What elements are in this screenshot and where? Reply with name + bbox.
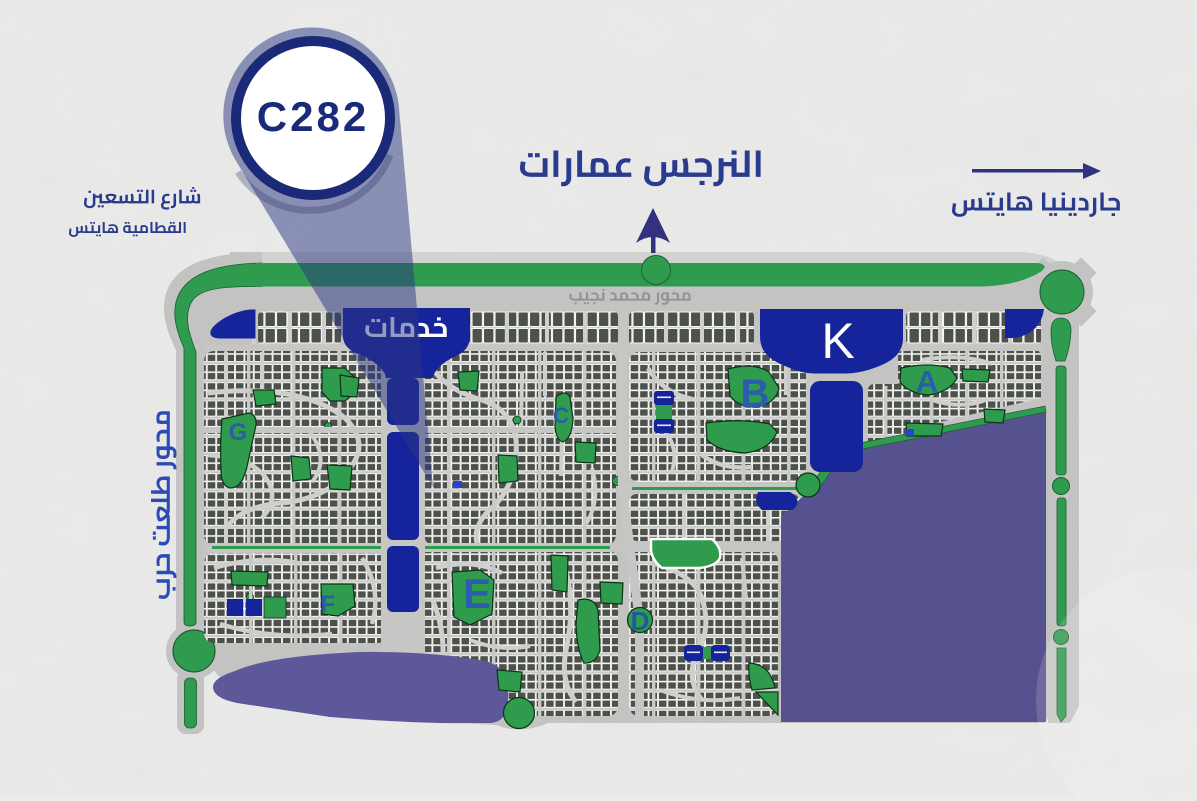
svg-text:A: A [916,364,938,399]
svg-text:F: F [321,591,336,618]
svg-text:B: B [741,372,770,416]
svg-text:C: C [553,403,569,428]
svg-text:K: K [821,313,854,369]
svg-text:G: G [229,419,248,446]
svg-text:E: E [463,570,491,617]
svg-text:D: D [631,606,650,636]
svg-text:C282: C282 [257,93,369,140]
